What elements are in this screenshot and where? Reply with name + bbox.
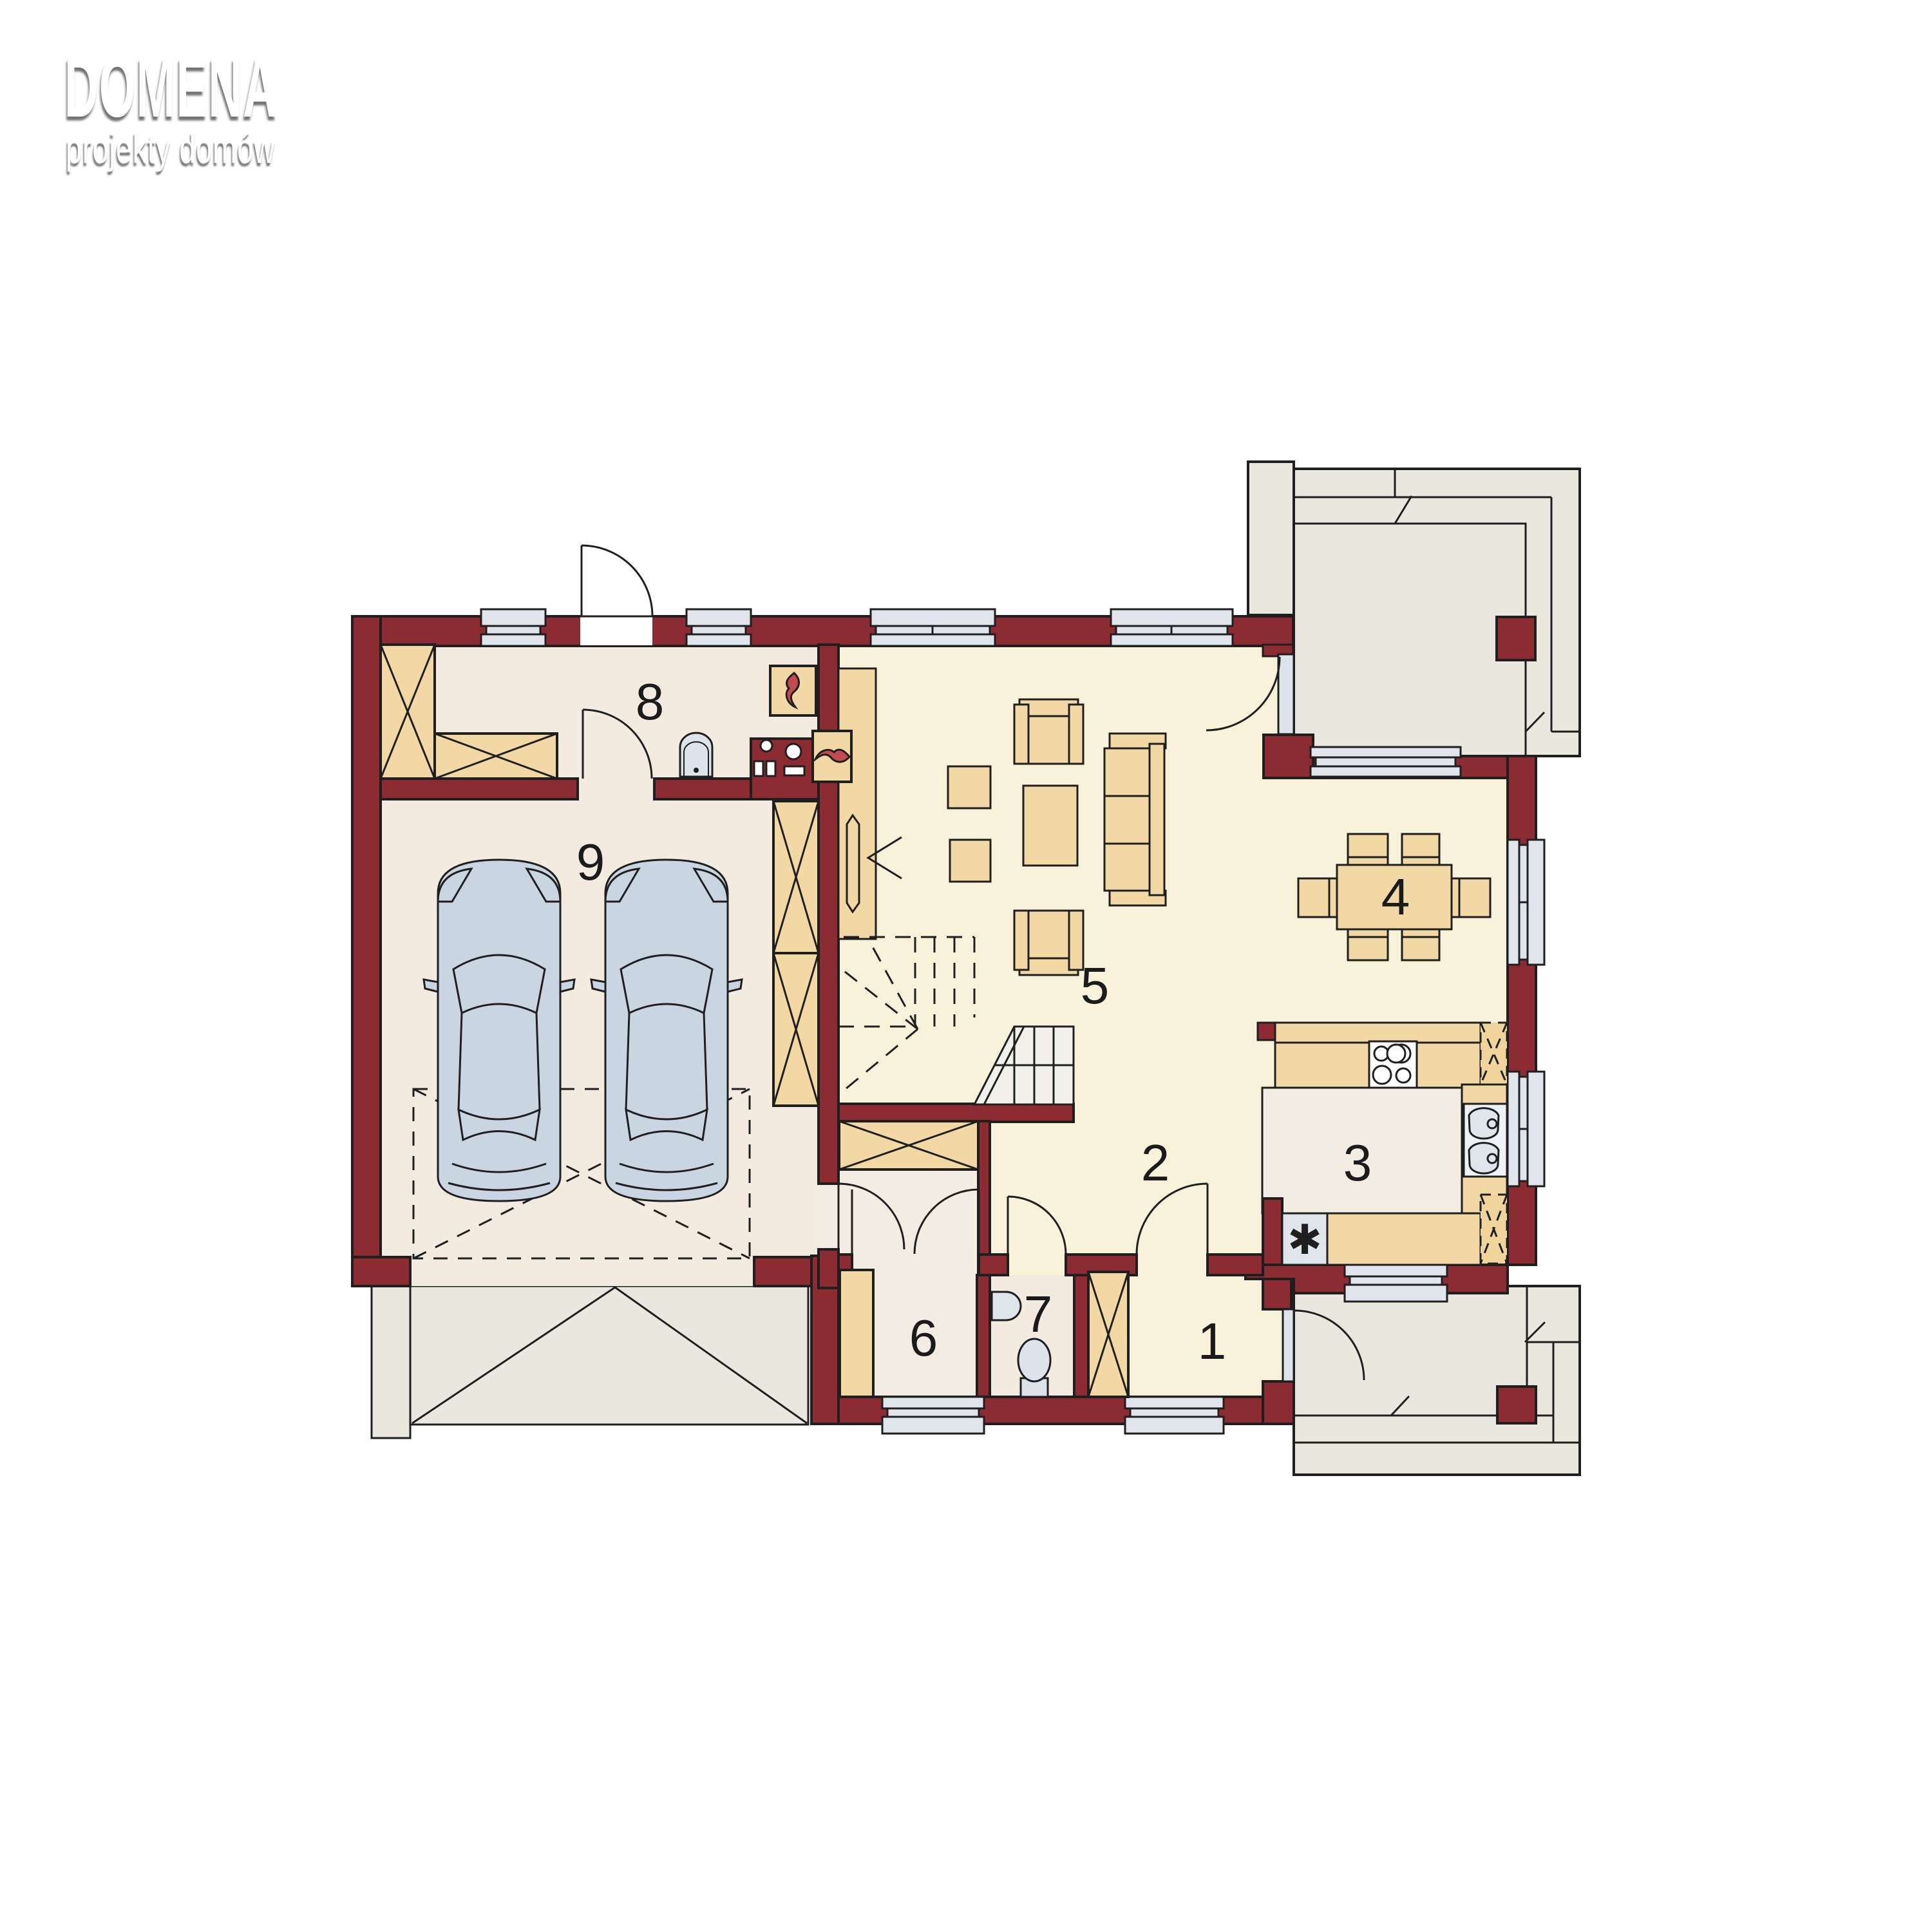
svg-text:7: 7 [1024, 1285, 1053, 1343]
svg-text:4: 4 [1381, 868, 1410, 925]
svg-text:✱: ✱ [1287, 1217, 1322, 1263]
svg-text:6: 6 [909, 1309, 938, 1367]
svg-text:5: 5 [1081, 957, 1110, 1014]
svg-text:9: 9 [576, 833, 605, 891]
svg-text:3: 3 [1343, 1134, 1372, 1191]
svg-text:8: 8 [636, 673, 665, 730]
svg-text:2: 2 [1141, 1134, 1170, 1191]
svg-text:1: 1 [1198, 1312, 1227, 1370]
